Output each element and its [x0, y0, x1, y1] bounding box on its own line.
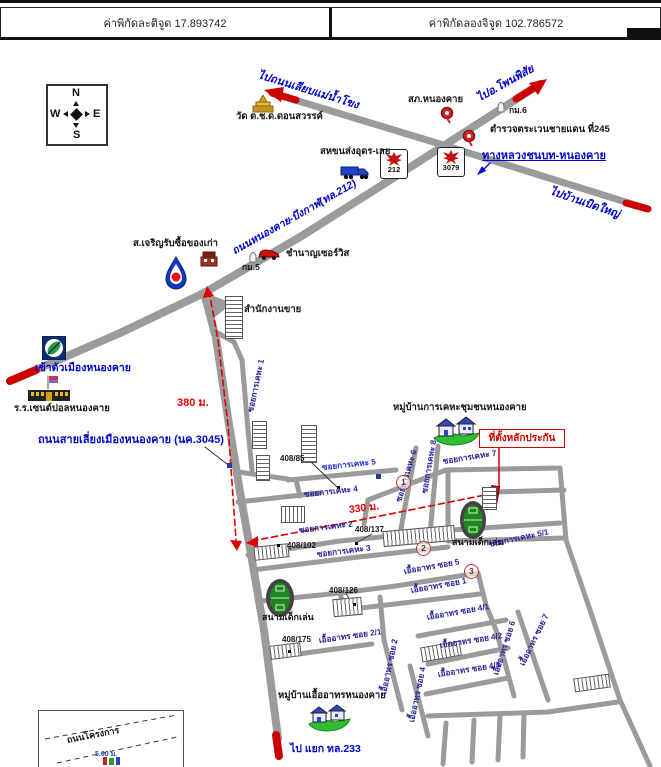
house-number-408-126: 408/126 — [329, 587, 358, 595]
sales-office-label: สำนักงานขาย — [244, 305, 301, 315]
distance-380m-label: 380 ม. — [177, 398, 209, 409]
map-page: ค่าพิกัดละติจูด 17.893742 ค่าพิกัดลองจิจ… — [0, 0, 661, 767]
temple-label: วัด ต.ช.ด.ดอนสวรรค์ — [236, 112, 323, 122]
compass-west-label: W — [50, 109, 60, 120]
house-point — [277, 544, 280, 547]
spot-marker-1: 1 — [396, 475, 411, 490]
compass-arrow-south-icon — [73, 123, 79, 128]
compass-arrow-east-icon — [85, 111, 90, 117]
house-number-408-175: 408/175 — [282, 636, 311, 644]
spot-marker-2: 2 — [416, 541, 431, 556]
plots-strip — [256, 455, 270, 481]
house-number-408-102: 408/102 — [287, 542, 316, 550]
police-badge-icon — [462, 129, 476, 147]
km6-milestone-icon — [497, 102, 505, 113]
house-point — [355, 542, 358, 545]
compass-south-label: S — [73, 130, 80, 141]
compass-arrow-north-icon — [73, 101, 79, 106]
house-point — [353, 603, 356, 606]
school-building-icon — [26, 374, 72, 404]
junk-shop-building-icon — [199, 250, 219, 267]
plots-strip — [281, 506, 305, 523]
border-patrol-label: ตำรวจตระเวนชายแดน ที่245 — [490, 125, 610, 135]
playground-label: สนามเด็กเล่น — [262, 613, 314, 622]
route-to-junction-233: ไป แยก ทล.233 — [290, 744, 361, 755]
transport-co-label: สหขนส่งอุดร-เลย — [320, 147, 390, 157]
ptt-gas-station-icon — [163, 256, 189, 290]
house-number-408-85: 408/85 — [280, 455, 304, 463]
compass-north-label: N — [72, 88, 80, 99]
uea-athon-village-label: หมู่บ้านเอื้ออาทรหนองคาย — [278, 691, 386, 701]
plots-strip — [332, 597, 362, 617]
compass-east-label: E — [93, 109, 100, 120]
plots-strip — [482, 487, 497, 510]
collateral-site-box: ที่ตั้งหลักประกัน — [479, 429, 565, 448]
garuda-icon — [443, 150, 459, 164]
truck-icon — [340, 163, 370, 180]
route-bypass-road: ถนนสายเลี่ยงเมืองหนองคาย (นค.3045) — [38, 435, 224, 446]
house-point — [288, 650, 291, 653]
police-station-label: สภ.หนองคาย — [408, 95, 463, 105]
keha-village-label: หมู่บ้านการเคหะชุมชนหนองคาย — [393, 403, 527, 413]
compass-arrow-west-icon — [63, 111, 68, 117]
uea-athon-village-houses-icon — [306, 704, 352, 734]
route-rural-highway: ทางหลวงชนบท-หนองคาย — [482, 151, 606, 162]
project-road-width-label: 5.00 ม. — [95, 751, 117, 758]
keha-village-houses-icon — [431, 416, 481, 448]
sales-office-plots-strip — [225, 296, 243, 339]
compass-needle-icon — [70, 108, 83, 121]
police-badge-icon — [440, 106, 454, 124]
plots-strip — [252, 421, 267, 449]
junk-shop-label: ส.เจริญรับซื้อของเก่า — [133, 239, 218, 249]
house-point — [337, 486, 340, 489]
km5-label: กม.5 — [242, 263, 260, 272]
chamnan-service-label: ชำนาญเซอร์วิส — [286, 249, 349, 259]
soi-keha-5-point — [376, 474, 381, 479]
house-number-408-137: 408/137 — [355, 526, 384, 534]
highway-shield-3079: 3079 — [437, 147, 465, 177]
route-to-city: เข้าตัวเมืองหนองคาย — [35, 363, 131, 374]
bypass-road-point — [227, 463, 232, 468]
shield-212-number: 212 — [381, 166, 407, 174]
shield-3079-number: 3079 — [438, 164, 464, 172]
spot-marker-3: 3 — [464, 564, 479, 579]
school-label: ร.ร.เซนต์ปอลหนองคาย — [14, 404, 110, 414]
km6-label: กม.6 — [509, 106, 527, 115]
compass-rose: N S W E — [46, 84, 108, 146]
project-road-legend-box: ถนนโครงการ 5.00 ม. — [38, 710, 184, 767]
car-icon — [258, 248, 280, 260]
bangchak-leaf-logo-icon — [42, 336, 66, 360]
